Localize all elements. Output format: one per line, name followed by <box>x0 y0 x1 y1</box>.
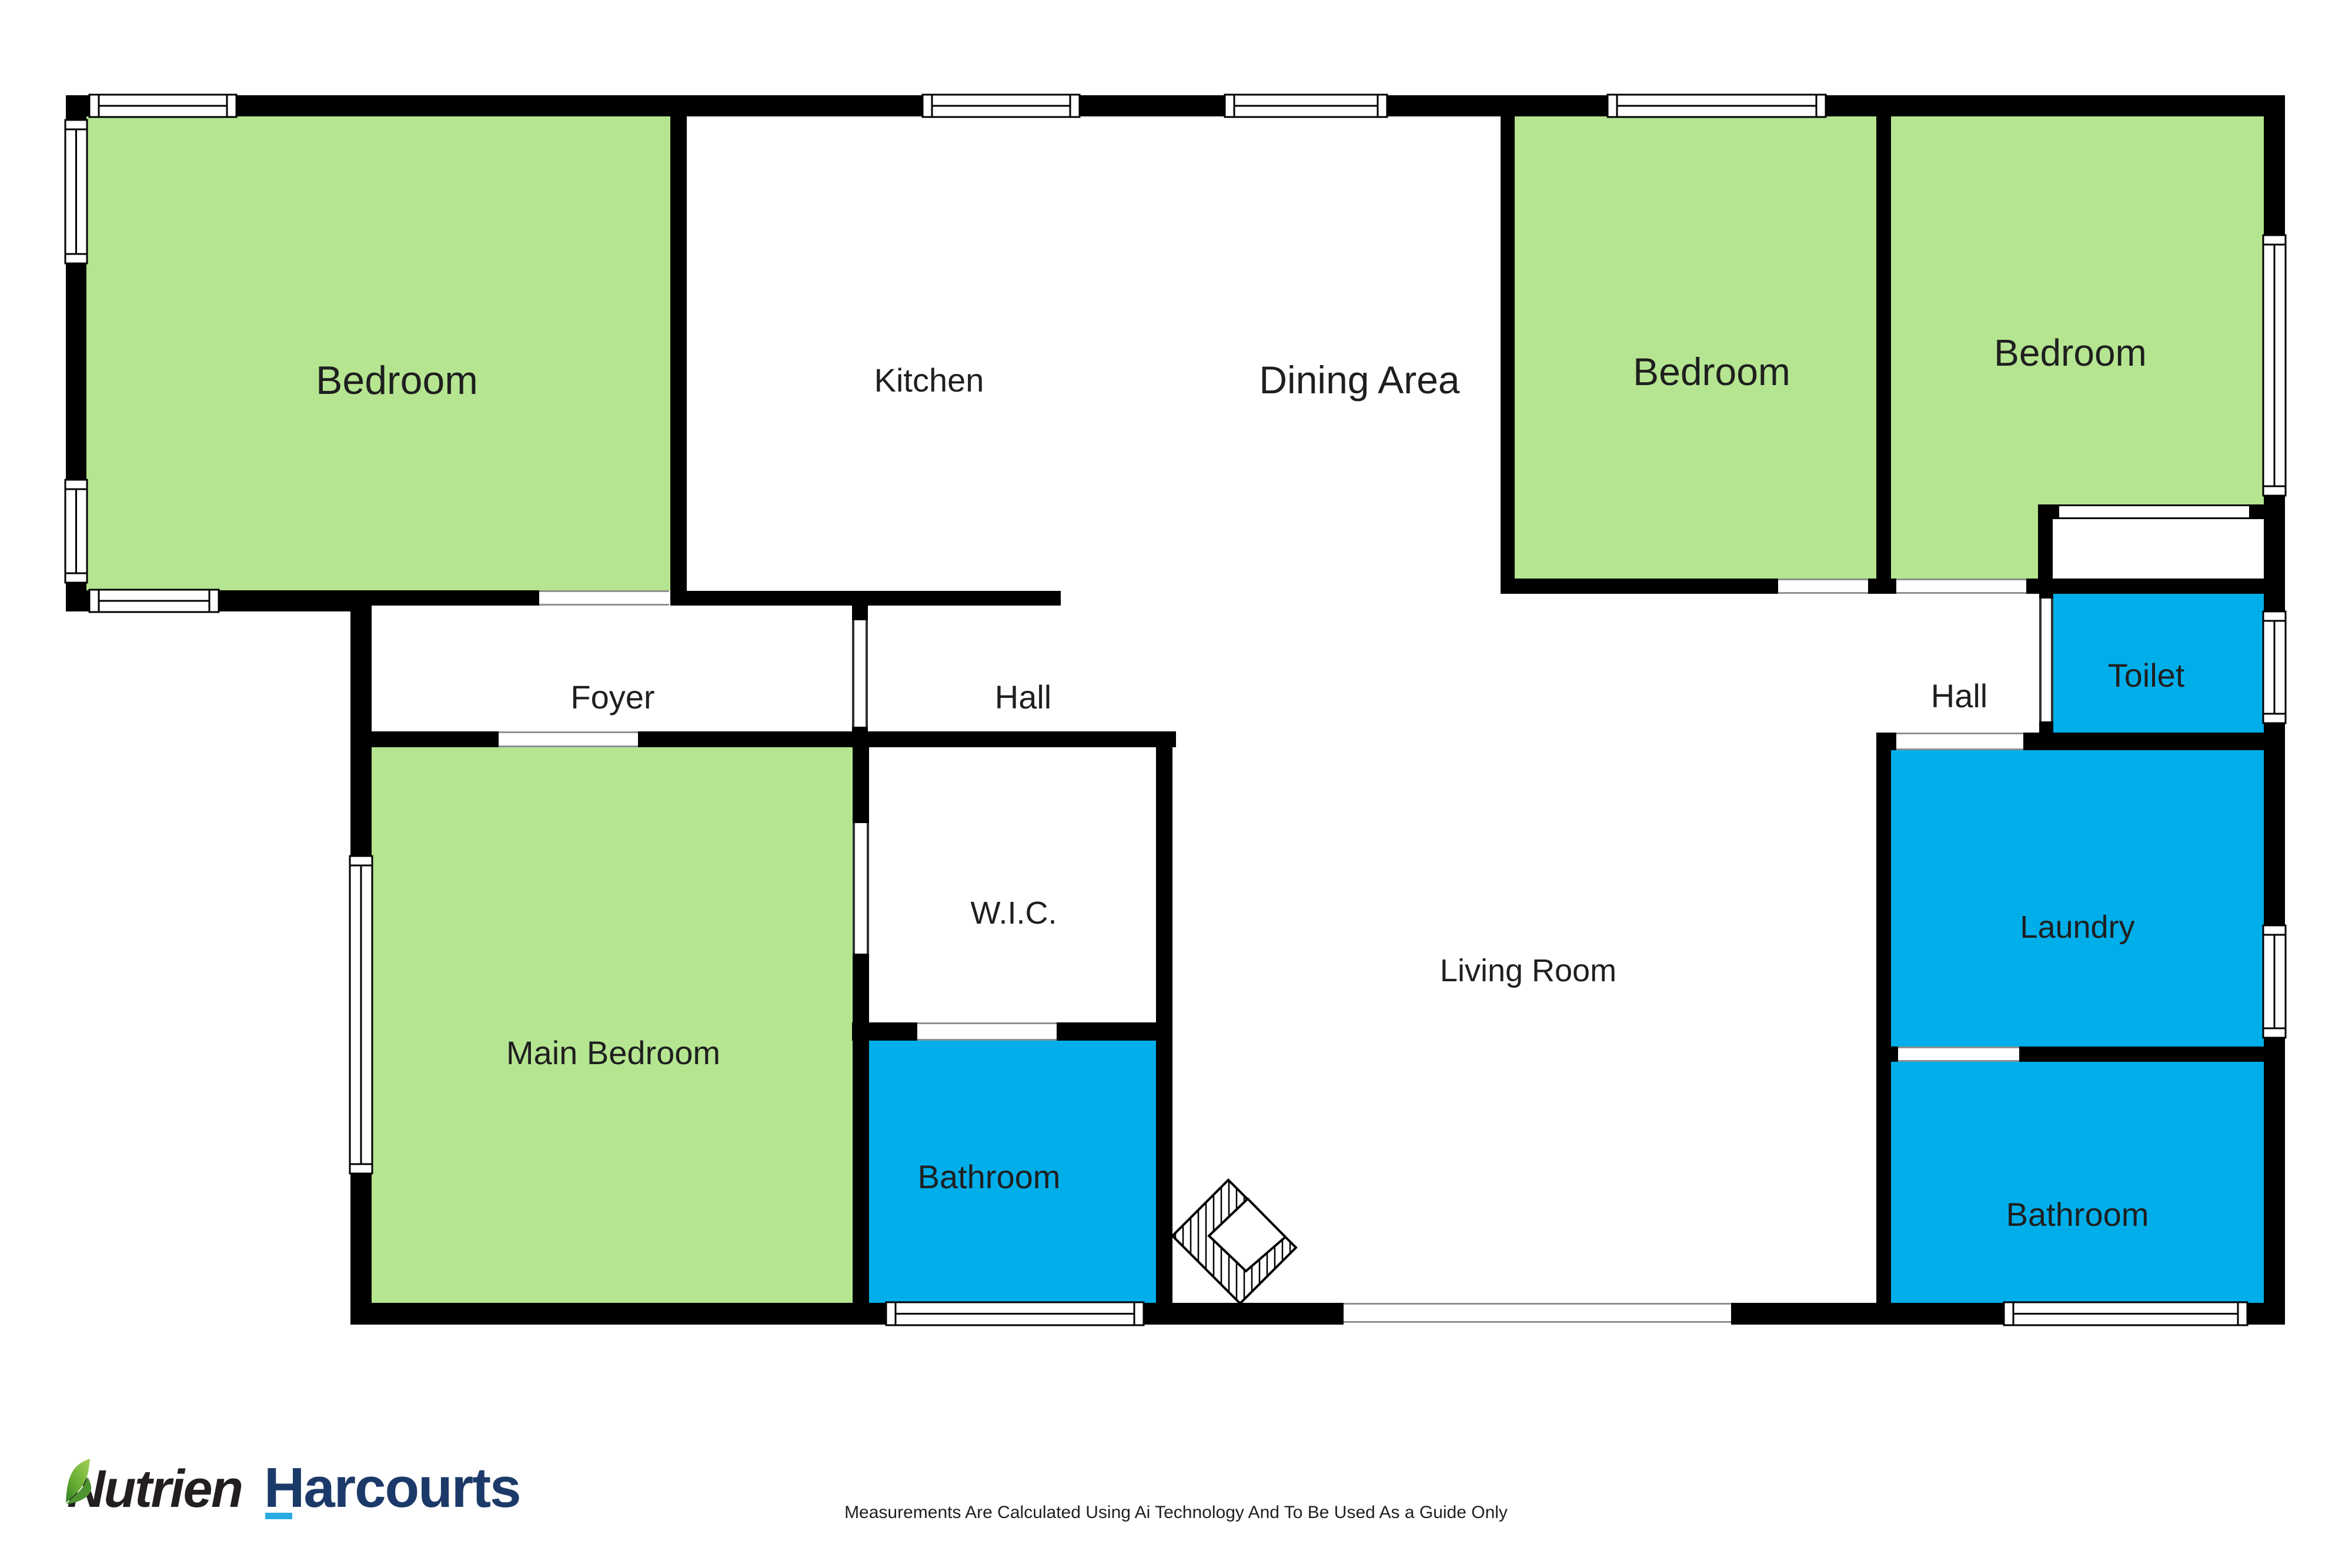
svg-text:Bathroom: Bathroom <box>2006 1196 2149 1233</box>
svg-text:Toilet: Toilet <box>2108 657 2185 694</box>
svg-text:W.I.C.: W.I.C. <box>971 895 1057 931</box>
svg-text:Kitchen: Kitchen <box>874 362 984 399</box>
svg-text:Nutrien: Nutrien <box>67 1460 242 1519</box>
svg-text:Bedroom: Bedroom <box>1633 350 1790 393</box>
svg-text:Bedroom: Bedroom <box>1994 332 2147 374</box>
svg-text:Hall: Hall <box>995 678 1051 716</box>
svg-text:Bedroom: Bedroom <box>316 358 478 403</box>
svg-text:Laundry: Laundry <box>2020 910 2134 945</box>
svg-text:Measurements Are Calculated Us: Measurements Are Calculated Using Ai Tec… <box>844 1503 1508 1522</box>
svg-text:Dining Area: Dining Area <box>1259 358 1460 402</box>
svg-text:Living Room: Living Room <box>1440 953 1616 988</box>
svg-text:Hall: Hall <box>1931 677 1987 714</box>
svg-text:Main Bedroom: Main Bedroom <box>506 1034 720 1071</box>
svg-text:Harcourts: Harcourts <box>264 1456 520 1519</box>
svg-text:Foyer: Foyer <box>570 678 654 716</box>
svg-text:Bathroom: Bathroom <box>918 1158 1061 1195</box>
